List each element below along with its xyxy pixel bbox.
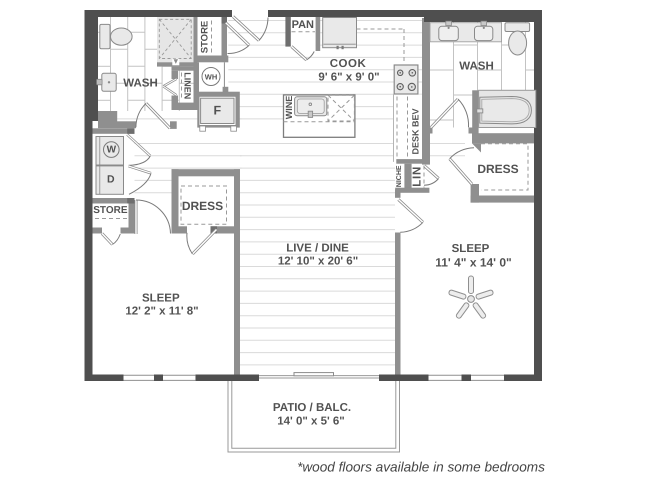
svg-text:LIN: LIN	[411, 166, 423, 187]
svg-text:9' 6" x 9' 0": 9' 6" x 9' 0"	[318, 71, 379, 83]
svg-text:12' 2" x 11' 8": 12' 2" x 11' 8"	[125, 305, 198, 317]
svg-text:DRESS: DRESS	[182, 199, 223, 213]
svg-text:SLEEP: SLEEP	[142, 292, 180, 304]
svg-text:11' 4" x 14' 0": 11' 4" x 14' 0"	[435, 255, 511, 269]
svg-text:F: F	[213, 104, 221, 118]
svg-text:NICHE: NICHE	[396, 165, 403, 187]
svg-text:LINEN: LINEN	[183, 72, 193, 99]
svg-text:STORE: STORE	[93, 205, 128, 216]
svg-text:D: D	[107, 173, 115, 185]
svg-text:COOK: COOK	[330, 58, 367, 70]
svg-text:WH: WH	[205, 72, 218, 81]
svg-text:WASH: WASH	[459, 61, 494, 73]
svg-text:14' 0" x 5' 6": 14' 0" x 5' 6"	[277, 416, 345, 428]
svg-text:W: W	[107, 144, 117, 155]
svg-text:SLEEP: SLEEP	[452, 243, 490, 255]
svg-text:PAN: PAN	[292, 19, 314, 31]
svg-text:DRESS: DRESS	[477, 162, 518, 176]
svg-text:WINE: WINE	[284, 96, 294, 120]
svg-text:DESK BEV: DESK BEV	[411, 108, 421, 154]
svg-text:WASH: WASH	[123, 78, 158, 90]
svg-text:*wood floors available in some: *wood floors available in some bedrooms	[297, 460, 545, 475]
svg-text:PATIO / BALC.: PATIO / BALC.	[273, 402, 351, 414]
svg-text:LIVE / DINE: LIVE / DINE	[286, 243, 349, 255]
svg-text:STORE: STORE	[200, 21, 211, 54]
svg-text:12' 10" x 20' 6": 12' 10" x 20' 6"	[278, 256, 358, 268]
